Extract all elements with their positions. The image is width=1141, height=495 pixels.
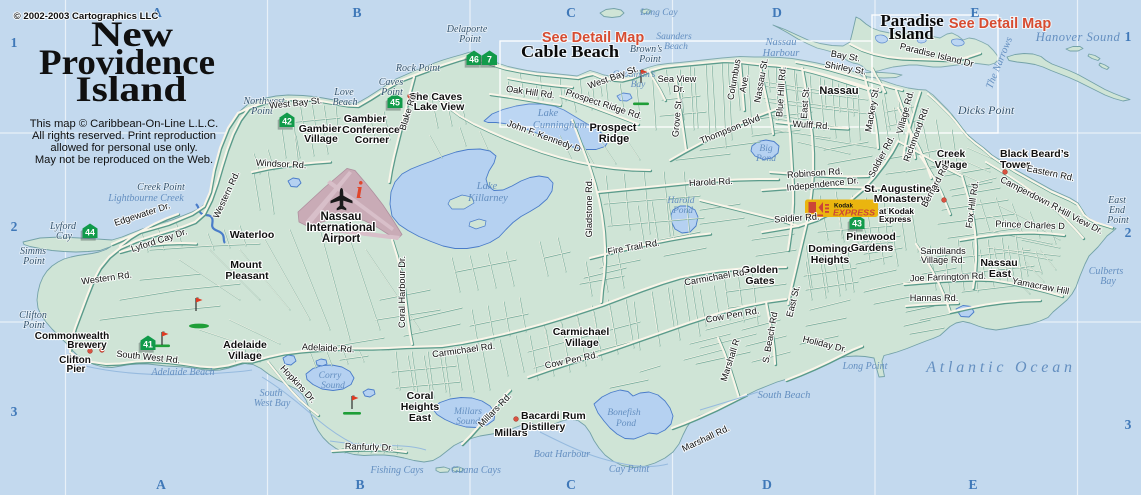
svg-text:Bay: Bay [1100, 276, 1116, 287]
svg-text:Monastery: Monastery [874, 193, 927, 205]
svg-text:Adelaide Beach: Adelaide Beach [150, 367, 214, 378]
svg-text:44: 44 [85, 228, 95, 238]
svg-text:Millars: Millars [453, 407, 482, 417]
svg-text:Point: Point [22, 256, 45, 267]
svg-text:Lake: Lake [476, 181, 498, 192]
svg-text:D: D [762, 477, 772, 492]
svg-text:1: 1 [11, 35, 18, 50]
svg-text:Creek Point: Creek Point [137, 182, 185, 193]
svg-text:C: C [566, 5, 576, 20]
svg-text:Brewery: Brewery [67, 340, 107, 351]
svg-text:Hannas Rd.: Hannas Rd. [910, 293, 959, 303]
svg-text:Bonefish: Bonefish [607, 407, 640, 418]
svg-text:Pier: Pier [67, 364, 86, 375]
svg-text:Cay: Cay [56, 231, 73, 242]
svg-text:Lake: Lake [537, 108, 559, 119]
svg-text:2: 2 [1125, 225, 1132, 240]
svg-text:Boat Harbour: Boat Harbour [534, 449, 591, 460]
svg-text:2: 2 [11, 219, 18, 234]
svg-text:Village Rd.: Village Rd. [921, 255, 965, 265]
svg-text:Harbour: Harbour [762, 48, 801, 59]
svg-text:46: 46 [469, 55, 479, 65]
svg-text:Rock Point: Rock Point [395, 63, 440, 74]
svg-text:Lake View: Lake View [414, 101, 465, 113]
svg-text:Dr.: Dr. [673, 84, 685, 94]
svg-text:Ranfurly Dr.: Ranfurly Dr. [345, 441, 394, 453]
svg-text:Sound: Sound [321, 381, 345, 391]
svg-text:Coral Harbour Dr.: Coral Harbour Dr. [397, 256, 407, 328]
svg-text:B: B [352, 5, 361, 20]
svg-text:Pond: Pond [615, 419, 636, 429]
svg-text:All rights reserved. Print rep: All rights reserved. Print reproduction [32, 130, 216, 142]
svg-text:45: 45 [390, 98, 400, 108]
svg-text:Nassau: Nassau [765, 37, 797, 48]
svg-text:Point: Point [22, 320, 45, 331]
svg-text:May not be reproduced on the W: May not be reproduced on the Web. [35, 154, 213, 166]
svg-text:Express: Express [879, 214, 912, 224]
svg-text:Bay: Bay [631, 80, 647, 90]
svg-text:A: A [156, 477, 166, 492]
svg-text:Village: Village [565, 337, 599, 349]
svg-text:Long Cay: Long Cay [639, 8, 678, 18]
svg-text:Atlantic Ocean: Atlantic Ocean [925, 359, 1076, 376]
svg-text:43: 43 [852, 219, 862, 229]
svg-text:Point: Point [380, 87, 403, 98]
svg-text:South Beach: South Beach [758, 390, 811, 401]
svg-text:Lightbourne Creek: Lightbourne Creek [107, 193, 184, 204]
svg-text:Beach: Beach [333, 97, 358, 108]
svg-text:3: 3 [1125, 417, 1132, 432]
svg-text:Heights: Heights [811, 254, 850, 266]
svg-text:41: 41 [143, 340, 153, 350]
svg-text:Guana Cays: Guana Cays [451, 465, 501, 476]
svg-text:West Bay: West Bay [254, 398, 291, 409]
svg-text:Pleasant: Pleasant [225, 270, 269, 282]
svg-text:Village: Village [304, 133, 338, 145]
svg-text:Beach: Beach [664, 42, 688, 52]
svg-text:Ridge: Ridge [599, 133, 630, 145]
svg-text:Hanover Sound: Hanover Sound [1035, 30, 1121, 44]
svg-text:Corner: Corner [355, 134, 389, 146]
svg-text:Gates: Gates [745, 275, 774, 287]
svg-text:Creek: Creek [937, 149, 966, 160]
svg-text:Killarney: Killarney [467, 193, 508, 204]
svg-text:allowed for personal use only.: allowed for personal use only. [50, 142, 197, 154]
svg-text:Saunders: Saunders [656, 32, 692, 42]
svg-text:Waterloo: Waterloo [230, 229, 275, 241]
svg-text:Point: Point [1106, 215, 1129, 226]
svg-text:East: East [409, 412, 432, 424]
svg-text:Dicks Point: Dicks Point [957, 103, 1015, 117]
svg-text:Point: Point [638, 54, 661, 65]
svg-text:Cay Point: Cay Point [609, 464, 649, 475]
svg-text:Gladstone Rd.: Gladstone Rd. [584, 179, 594, 238]
svg-text:C: C [566, 477, 576, 492]
svg-text:Pond: Pond [672, 206, 693, 216]
svg-text:Sea View: Sea View [658, 74, 697, 84]
svg-text:E: E [968, 477, 977, 492]
svg-text:Village: Village [228, 350, 262, 362]
svg-text:East: East [989, 268, 1012, 280]
svg-text:42: 42 [282, 117, 292, 127]
svg-text:Pond: Pond [755, 154, 776, 164]
svg-text:7: 7 [487, 55, 492, 65]
svg-text:EXPRESS: EXPRESS [833, 209, 876, 218]
svg-text:Corry: Corry [319, 371, 342, 381]
svg-text:Fishing Cays: Fishing Cays [369, 465, 423, 476]
svg-text:Island: Island [76, 69, 187, 109]
svg-text:Gardens: Gardens [851, 242, 894, 254]
svg-text:B: B [355, 477, 364, 492]
svg-text:Big: Big [759, 144, 772, 154]
svg-text:3: 3 [11, 404, 18, 419]
svg-text:This map © Caribbean-On-Line L: This map © Caribbean-On-Line L.L.C. [30, 118, 219, 130]
svg-text:Island: Island [888, 24, 934, 43]
svg-text:Nassau: Nassau [819, 85, 858, 97]
svg-text:Long Point: Long Point [842, 361, 888, 372]
svg-text:Distillery: Distillery [521, 421, 566, 433]
svg-text:Airport: Airport [322, 233, 361, 245]
svg-text:D: D [772, 5, 782, 20]
svg-text:i: i [356, 178, 363, 204]
svg-text:Harold: Harold [666, 196, 694, 206]
svg-text:Point: Point [458, 34, 481, 45]
svg-text:1: 1 [1125, 29, 1132, 44]
